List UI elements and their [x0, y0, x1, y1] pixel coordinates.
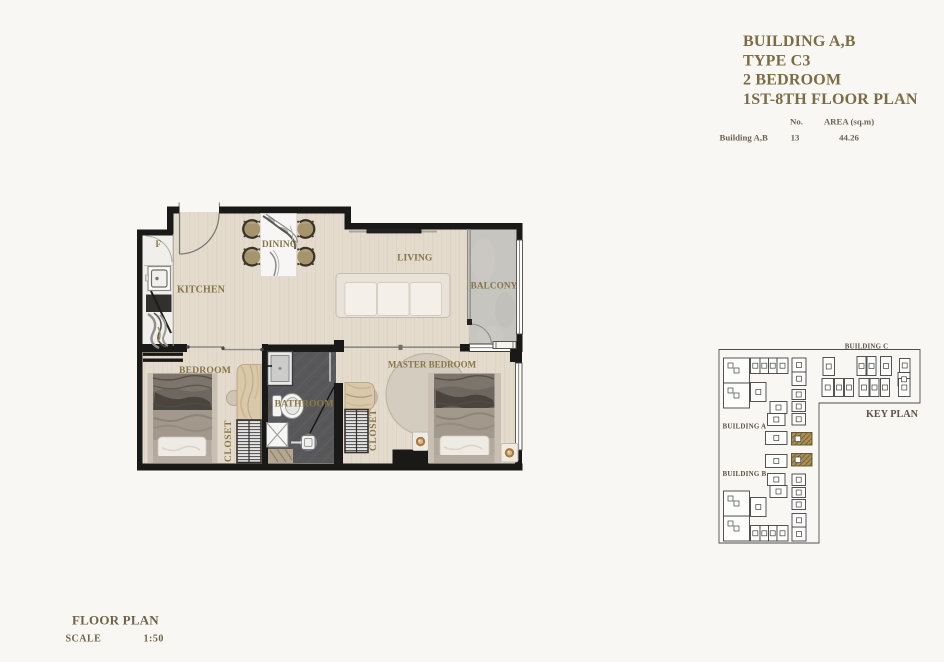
svg-text:BUILDING A: BUILDING A [723, 422, 767, 430]
svg-text:BATHROOM: BATHROOM [274, 399, 334, 410]
svg-text:MASTER BEDROOM: MASTER BEDROOM [388, 360, 477, 370]
svg-text:BUILDING C: BUILDING C [845, 344, 889, 351]
svg-text:KEY PLAN: KEY PLAN [866, 409, 919, 420]
svg-text:AREA (sq.m): AREA (sq.m) [824, 117, 874, 127]
svg-text:No.: No. [790, 117, 803, 127]
svg-text:Building A,B: Building A,B [720, 133, 769, 143]
svg-text:TYPE C3: TYPE C3 [743, 52, 811, 69]
svg-text:BALCONY: BALCONY [471, 281, 518, 291]
svg-text:BUILDING B: BUILDING B [723, 470, 767, 478]
svg-text:BEDROOM: BEDROOM [179, 365, 231, 376]
svg-text:13: 13 [791, 133, 800, 143]
svg-text:44.26: 44.26 [839, 133, 859, 143]
svg-text:CLOSET: CLOSET [369, 409, 379, 451]
svg-text:KITCHEN: KITCHEN [177, 285, 226, 296]
svg-text:DINING: DINING [262, 240, 298, 250]
svg-text:BUILDING A,B: BUILDING A,B [743, 33, 856, 50]
svg-text:1ST-8TH FLOOR PLAN: 1ST-8TH FLOOR PLAN [743, 91, 918, 108]
svg-text:CLOSET: CLOSET [224, 420, 234, 462]
svg-text:LIVING: LIVING [397, 253, 433, 264]
svg-text:F: F [156, 239, 162, 249]
svg-text:SCALE: SCALE [66, 634, 102, 645]
svg-text:FLOOR PLAN: FLOOR PLAN [72, 613, 159, 628]
svg-text:2 BEDROOM: 2 BEDROOM [743, 72, 841, 89]
svg-text:1:50: 1:50 [144, 634, 164, 645]
